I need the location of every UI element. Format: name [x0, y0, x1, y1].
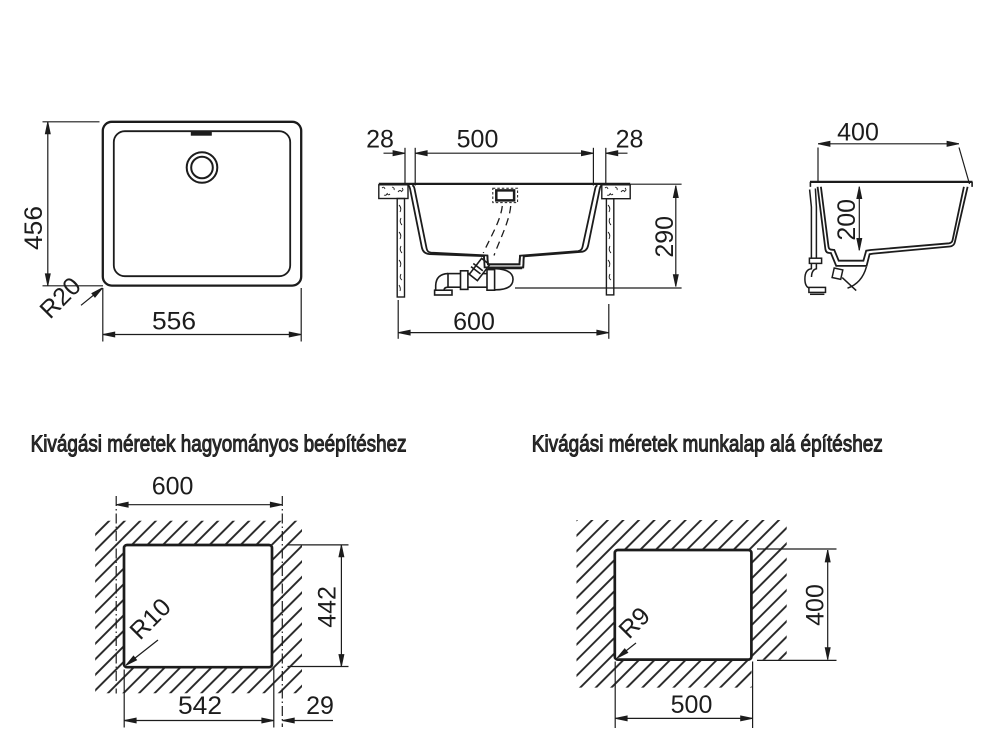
svg-text:600: 600 [152, 472, 194, 500]
svg-text:456: 456 [20, 206, 48, 250]
svg-text:Kivágási méretek munkalap alá: Kivágási méretek munkalap alá építéshez [532, 431, 883, 457]
svg-text:556: 556 [152, 308, 196, 336]
svg-text:600: 600 [453, 308, 495, 336]
svg-text:R20: R20 [34, 272, 86, 324]
svg-text:Kivágási méretek hagyományos b: Kivágási méretek hagyományos beépítéshez [31, 431, 407, 457]
svg-text:400: 400 [802, 584, 830, 626]
svg-text:29: 29 [306, 692, 334, 720]
svg-text:290: 290 [651, 216, 679, 258]
svg-text:200: 200 [833, 199, 861, 241]
svg-text:28: 28 [616, 126, 644, 154]
svg-text:542: 542 [178, 692, 222, 720]
svg-text:500: 500 [671, 691, 713, 719]
svg-text:28: 28 [366, 126, 394, 154]
svg-text:400: 400 [837, 119, 879, 147]
svg-text:500: 500 [457, 126, 499, 154]
svg-text:442: 442 [314, 586, 342, 628]
